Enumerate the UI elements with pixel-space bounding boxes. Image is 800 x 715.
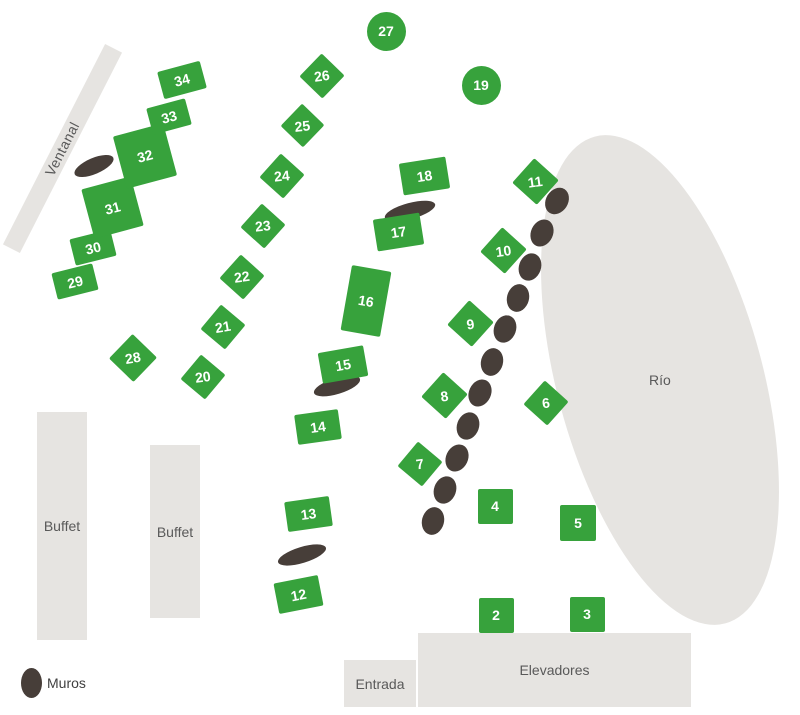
table-13[interactable]: 13	[284, 496, 333, 532]
table-number: 30	[84, 238, 103, 255]
table-number: 21	[214, 319, 232, 335]
table-number: 29	[66, 272, 85, 289]
buffet-center-area: Buffet	[150, 445, 200, 618]
table-number: 26	[313, 68, 330, 84]
table-number: 11	[527, 173, 544, 189]
table-20[interactable]: 20	[180, 354, 225, 399]
table-number: 22	[233, 269, 250, 285]
table-number: 9	[465, 316, 475, 331]
table-22[interactable]: 22	[219, 254, 264, 299]
muro-wall	[430, 473, 460, 507]
muro-wall	[504, 282, 532, 315]
table-number: 10	[494, 242, 511, 258]
table-number: 33	[160, 107, 179, 125]
table-34[interactable]: 34	[157, 61, 207, 99]
table-17[interactable]: 17	[372, 213, 423, 252]
table-8[interactable]: 8	[421, 372, 468, 419]
table-number: 19	[473, 78, 489, 92]
table-number: 4	[491, 499, 499, 513]
table-3[interactable]: 3	[570, 597, 605, 632]
table-number: 34	[173, 71, 192, 89]
table-number: 5	[574, 516, 582, 530]
elevadores-label: Elevadores	[519, 662, 589, 678]
muro-wall	[490, 312, 520, 346]
table-number: 6	[541, 396, 551, 411]
table-number: 17	[389, 224, 407, 240]
table-27[interactable]: 27	[367, 12, 406, 51]
table-number: 32	[136, 147, 155, 165]
table-25[interactable]: 25	[280, 103, 324, 147]
table-number: 14	[309, 419, 326, 435]
table-28[interactable]: 28	[109, 334, 157, 382]
table-16[interactable]: 16	[341, 265, 392, 337]
table-number: 24	[274, 168, 291, 184]
table-12[interactable]: 12	[273, 574, 323, 613]
table-number: 23	[255, 218, 272, 234]
table-number: 25	[294, 117, 311, 133]
table-number: 3	[583, 607, 591, 621]
table-number: 8	[439, 388, 449, 403]
table-number: 18	[415, 168, 433, 184]
muro-wall	[453, 409, 483, 443]
table-number: 28	[124, 350, 142, 366]
table-19[interactable]: 19	[462, 66, 501, 105]
elevadores-area: Elevadores	[418, 633, 691, 707]
table-9[interactable]: 9	[447, 300, 494, 347]
table-number: 20	[194, 369, 211, 385]
table-5[interactable]: 5	[560, 505, 596, 541]
muro-wall	[478, 346, 506, 379]
muro-wall	[419, 505, 447, 538]
table-15[interactable]: 15	[318, 345, 369, 384]
table-4[interactable]: 4	[478, 489, 513, 524]
table-number: 13	[299, 506, 316, 522]
table-number: 2	[492, 608, 500, 622]
table-29[interactable]: 29	[51, 263, 98, 299]
buffet-center-label: Buffet	[157, 524, 193, 540]
muro-wall	[72, 150, 117, 181]
muro-wall	[441, 441, 473, 476]
table-18[interactable]: 18	[398, 157, 449, 196]
buffet-left-area: Buffet	[37, 412, 87, 640]
legend-label: Muros	[47, 675, 86, 691]
table-number: 12	[289, 586, 307, 603]
muro-legend-swatch	[21, 668, 42, 698]
floor-plan: Ventanal Río Buffet Buffet Entrada Eleva…	[0, 0, 800, 715]
rio-label: Río	[649, 372, 671, 388]
table-number: 27	[378, 24, 394, 38]
table-26[interactable]: 26	[299, 53, 344, 98]
table-number: 31	[103, 198, 122, 216]
table-7[interactable]: 7	[397, 441, 442, 486]
table-2[interactable]: 2	[479, 598, 514, 633]
table-33[interactable]: 33	[146, 98, 192, 134]
table-number: 7	[415, 457, 425, 472]
muro-wall	[276, 540, 328, 570]
table-21[interactable]: 21	[200, 304, 245, 349]
entrada-area: Entrada	[344, 660, 416, 707]
muro-wall	[464, 376, 496, 411]
table-23[interactable]: 23	[240, 203, 285, 248]
buffet-left-label: Buffet	[44, 518, 80, 534]
legend: Muros	[21, 668, 86, 698]
table-number: 15	[334, 356, 352, 372]
table-14[interactable]: 14	[294, 409, 342, 445]
table-24[interactable]: 24	[259, 153, 304, 198]
entrada-label: Entrada	[355, 676, 404, 692]
table-number: 16	[357, 293, 375, 309]
